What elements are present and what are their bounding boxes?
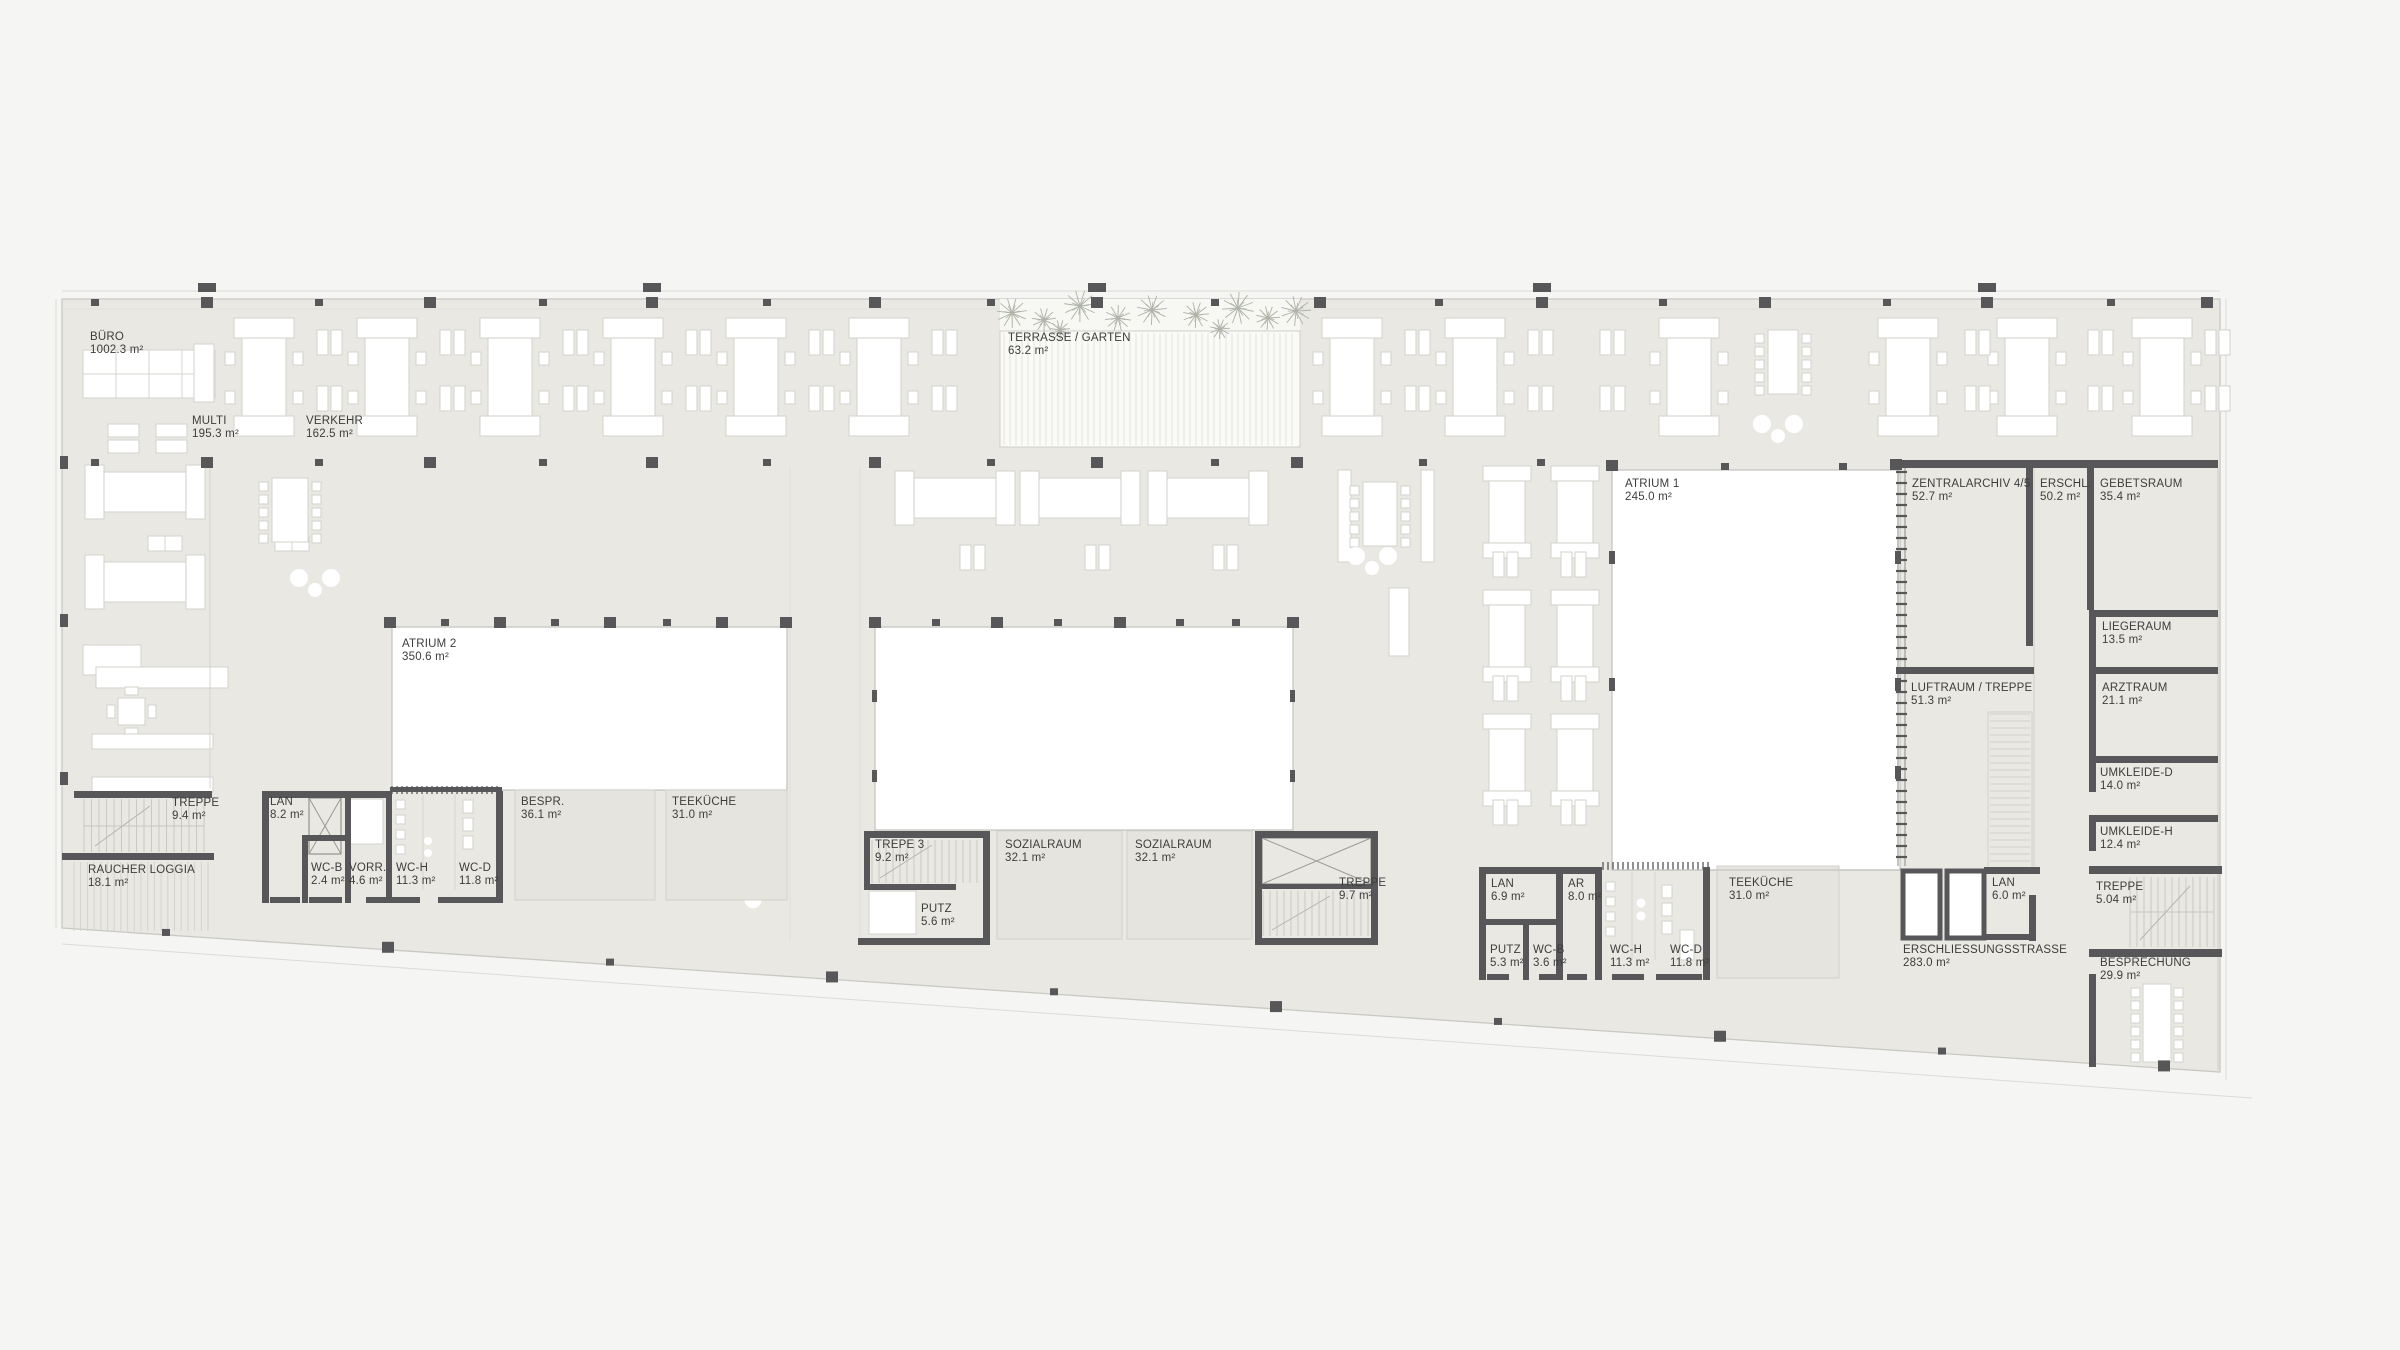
room-label-atrium-2: ATRIUM 2350.6 m²	[402, 638, 456, 663]
floor-plan-page: BÜRO1002.3 m² MULTI195.3 m² VERKEHR162.5…	[0, 0, 2400, 1350]
floor-plan-canvas: BÜRO1002.3 m² MULTI195.3 m² VERKEHR162.5…	[0, 0, 2400, 1350]
room-label-wc-b-right: WC-B3.6 m²	[1533, 944, 1567, 969]
room-label-putz-mid: PUTZ5.6 m²	[921, 903, 955, 928]
room-label-treppe-right: TREPPE5.04 m²	[2096, 881, 2143, 906]
room-label-putz-right: PUTZ5.3 m²	[1490, 944, 1524, 969]
room-label-vorr: VORR.4.6 m²	[349, 862, 386, 887]
room-label-bespr: BESPR.36.1 m²	[521, 796, 564, 821]
room-label-atrium-1: ATRIUM 1245.0 m²	[1625, 478, 1679, 503]
room-label-wc-b-left: WC-B2.4 m²	[311, 862, 345, 887]
